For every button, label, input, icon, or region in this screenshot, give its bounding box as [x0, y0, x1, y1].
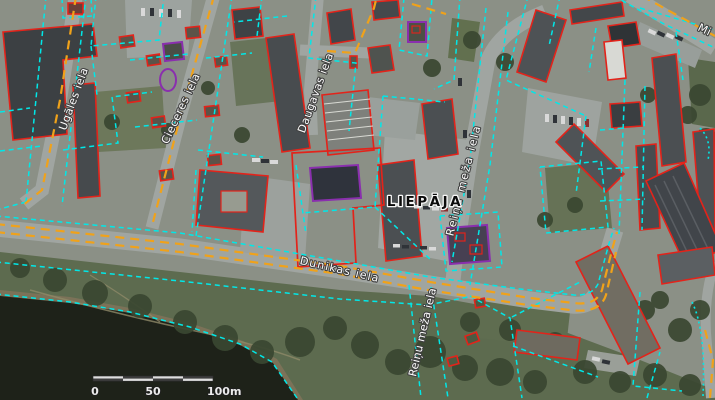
- city-label: LIEPĀJA: [387, 192, 463, 210]
- striped-roof-building: [322, 90, 374, 155]
- scale-tick-50: 50: [145, 385, 161, 398]
- protected-building-large: [310, 165, 361, 201]
- scale-tick-0: 0: [91, 385, 99, 398]
- map-viewport[interactable]: Ugāles iela Cieceres iela Daugavas iela …: [0, 0, 715, 400]
- scale-tick-100m: 100m: [207, 385, 241, 398]
- scale-bar-checkers: [93, 376, 213, 381]
- aerial-map: Ugāles iela Cieceres iela Daugavas iela …: [0, 0, 715, 400]
- protected-building-small: [408, 22, 426, 42]
